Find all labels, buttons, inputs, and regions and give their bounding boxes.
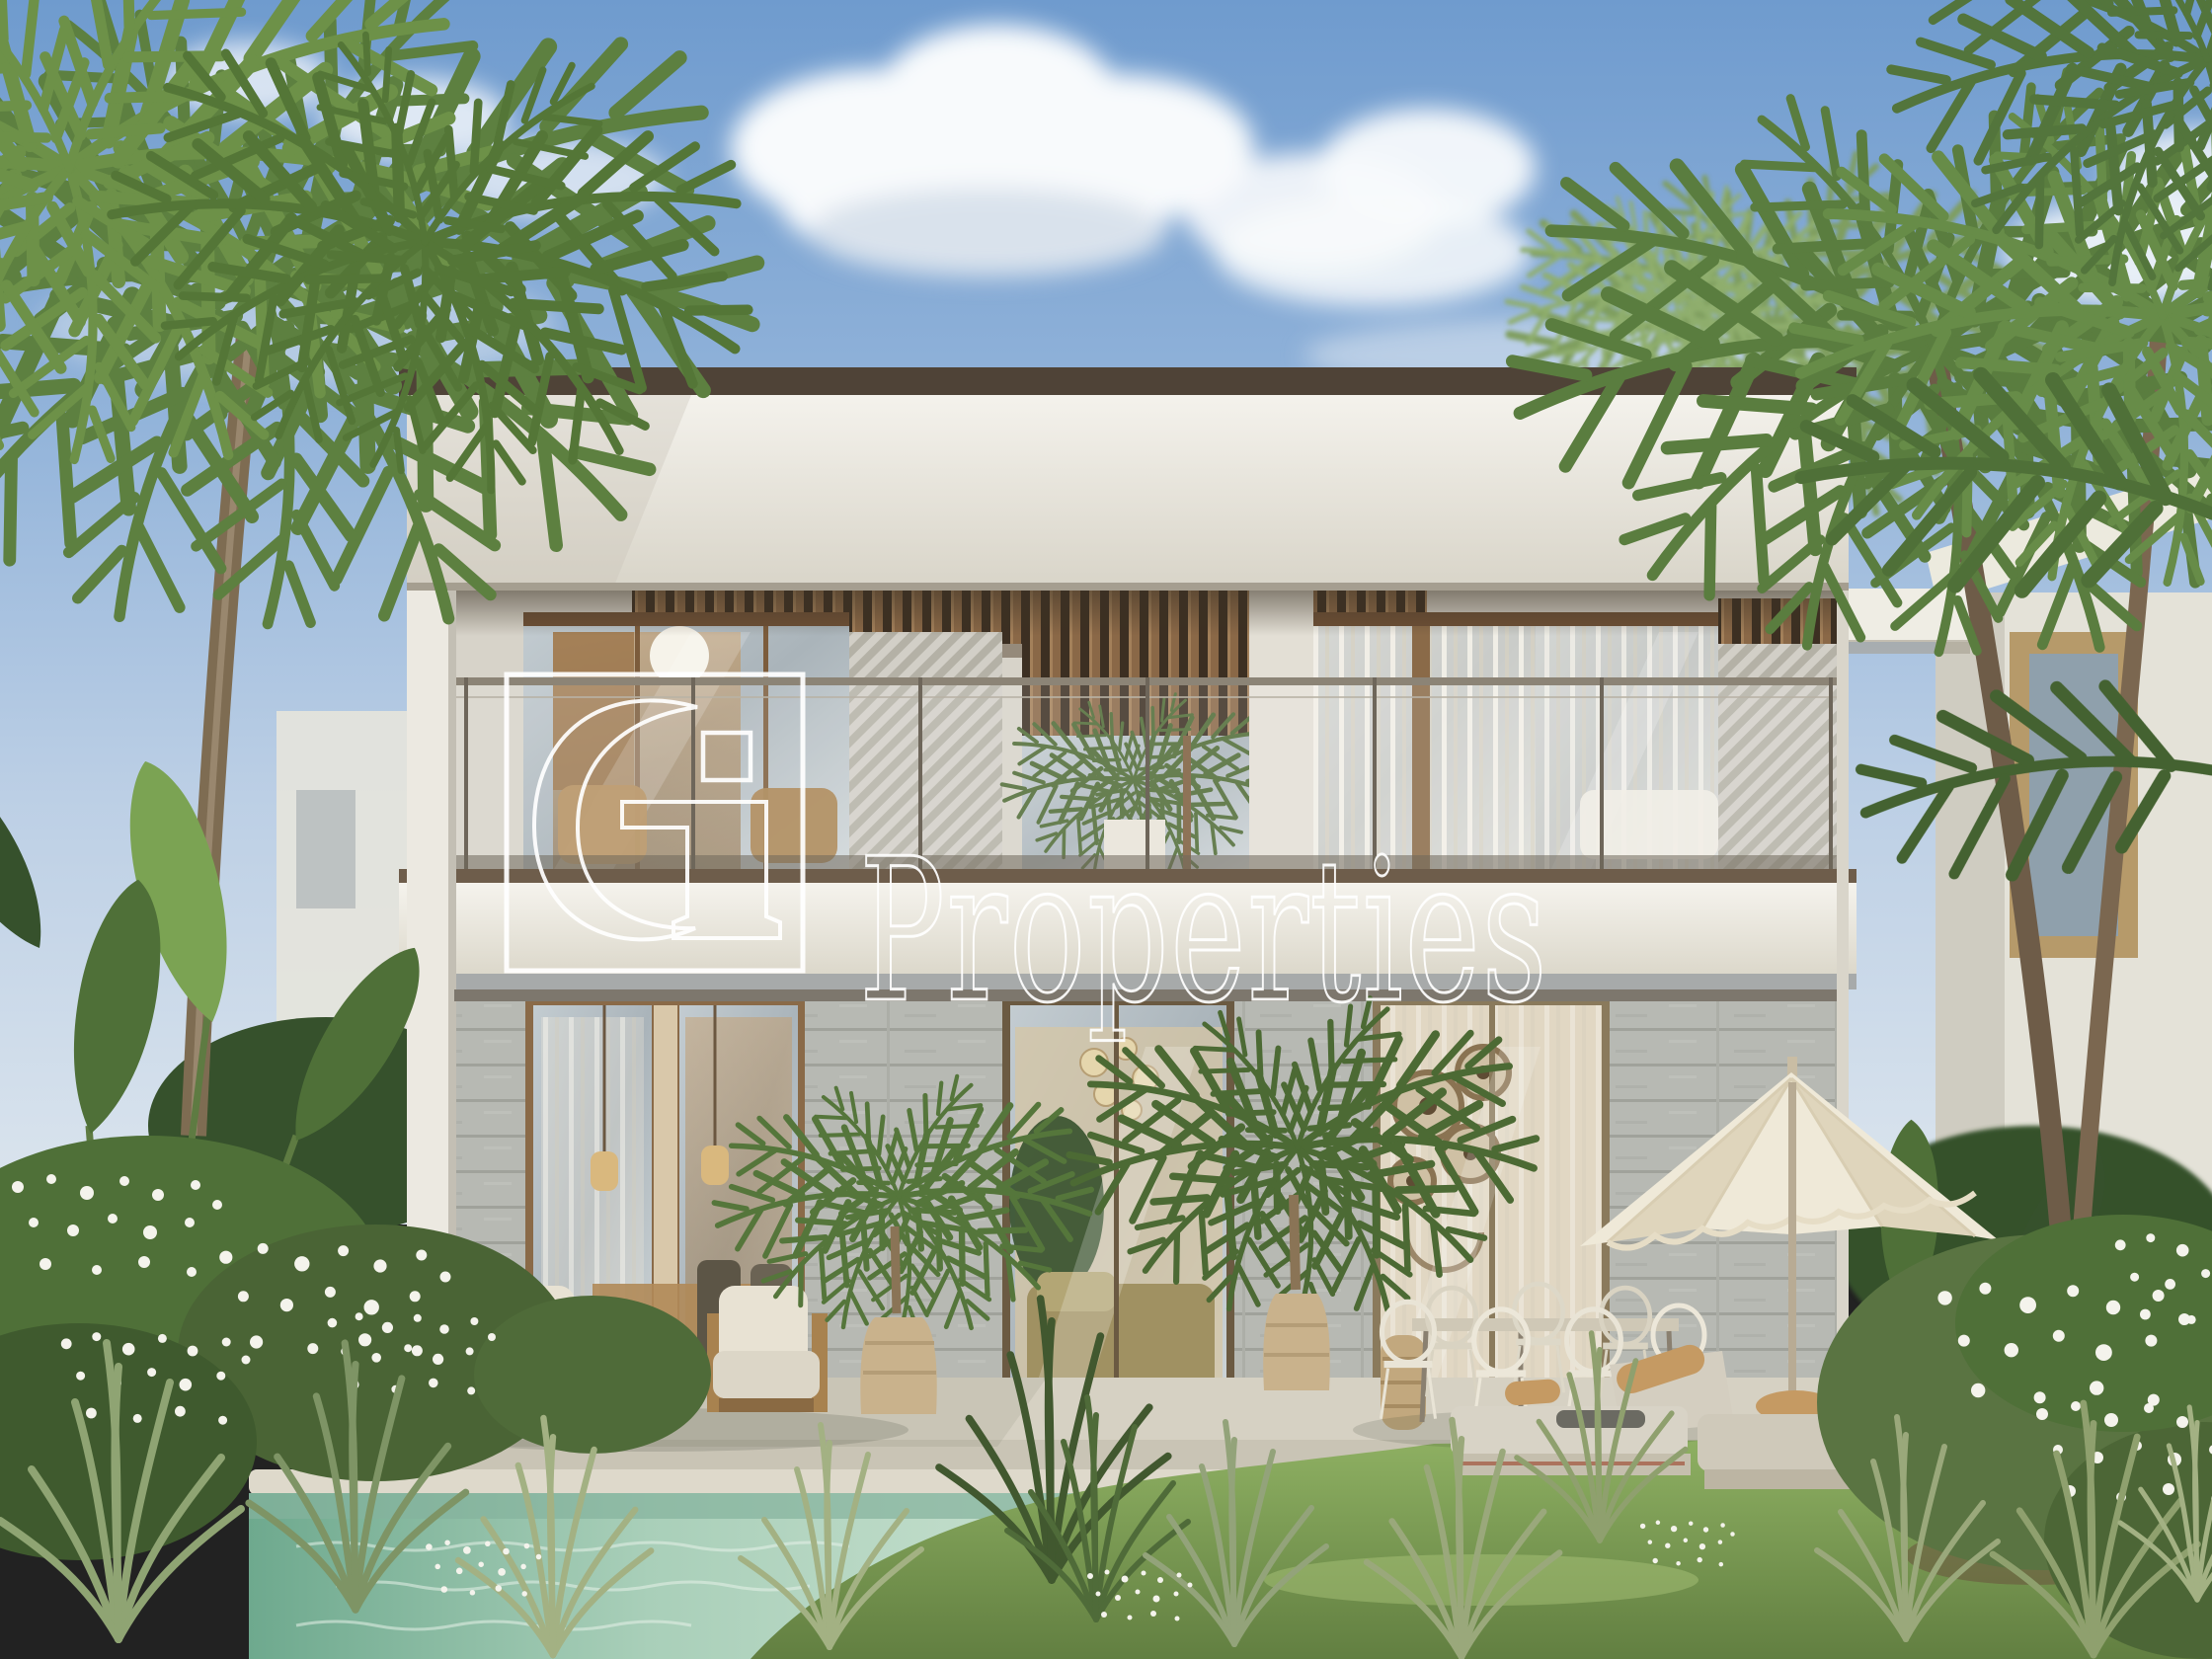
recess-shadow bbox=[454, 591, 1837, 636]
villa-rendering: Properties bbox=[0, 0, 2212, 1659]
bolster-pillow bbox=[1504, 1379, 1561, 1406]
pendant-lamp bbox=[591, 1151, 618, 1191]
corner-pier-right bbox=[1837, 591, 1849, 1432]
pendant-lamp bbox=[701, 1145, 729, 1185]
scene: Properties bbox=[0, 0, 2212, 1659]
dining-table bbox=[1412, 1318, 1679, 1331]
watermark-text: Properties bbox=[859, 817, 1548, 1047]
